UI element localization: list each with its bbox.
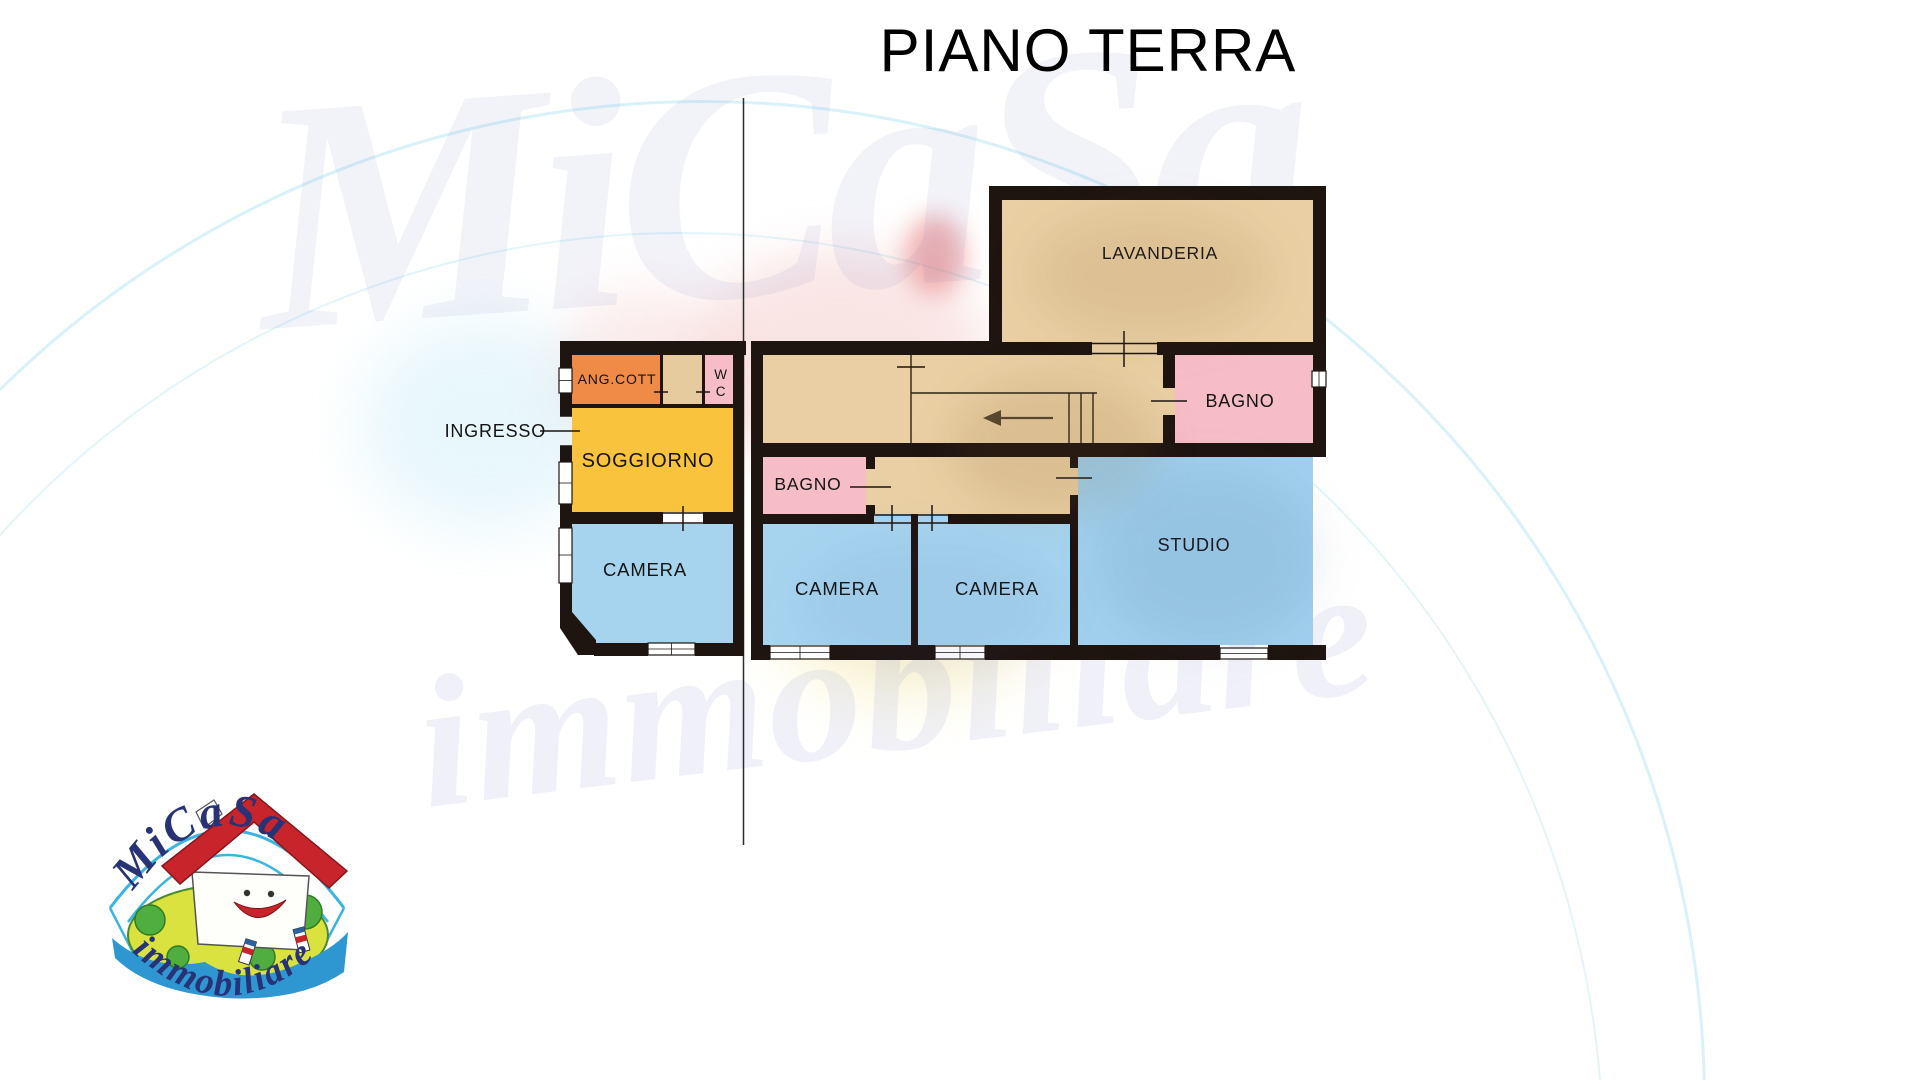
window <box>559 368 572 393</box>
label-wc-line1: W <box>714 367 728 382</box>
label-studio: STUDIO <box>1158 535 1231 555</box>
room-lavanderia <box>1002 200 1313 342</box>
room-closet <box>663 355 702 404</box>
logo-tree <box>135 905 165 935</box>
door-gap-studio <box>1070 468 1078 495</box>
label-bagno-top: BAGNO <box>1205 391 1274 411</box>
room-corridor-lower <box>875 457 1070 514</box>
window <box>648 643 695 655</box>
window <box>1312 371 1326 387</box>
window <box>559 462 572 504</box>
room-camera-left <box>572 524 733 643</box>
logo-eye <box>268 891 274 897</box>
window <box>935 646 985 659</box>
window <box>559 528 572 583</box>
label-bagno-mid: BAGNO <box>774 474 841 494</box>
label-camera-left: CAMERA <box>603 559 687 580</box>
label-wc-line2: C <box>716 384 727 399</box>
label-camera-right: CAMERA <box>955 578 1039 599</box>
logo-eye <box>244 890 250 896</box>
label-camera-center: CAMERA <box>795 578 879 599</box>
floor-plan-page: MiCaSa immobiliare PIANO TERRA <box>0 0 1920 1080</box>
floor-plan-drawing: LAVANDERIA BAGNO ANG.COTT W C SOGGIORNO … <box>0 0 1920 1080</box>
label-soggiorno: SOGGIORNO <box>582 450 715 472</box>
label-ingresso: INGRESSO <box>445 421 546 441</box>
window <box>770 646 830 659</box>
room-corridor-upper <box>763 355 1163 443</box>
label-lavanderia: LAVANDERIA <box>1102 243 1218 263</box>
window <box>1220 648 1268 659</box>
agency-logo: MiCaSa immobiliare <box>101 784 348 1005</box>
label-ang-cott: ANG.COTT <box>578 371 657 387</box>
